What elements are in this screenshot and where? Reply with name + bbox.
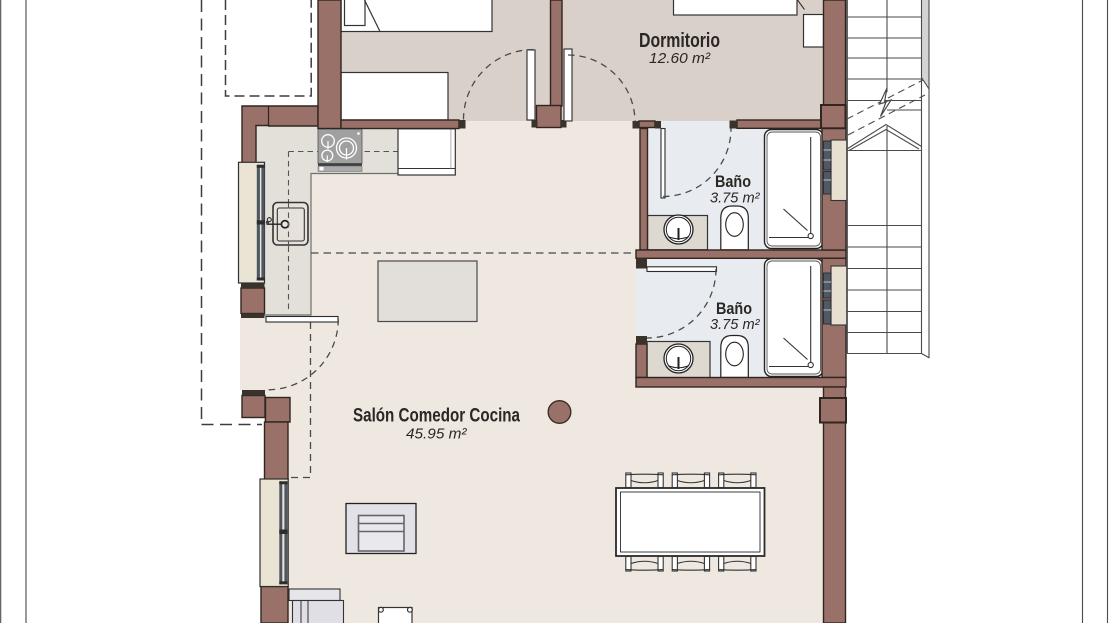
svg-text:Baño: Baño [715,172,751,191]
svg-text:Dormitorio: Dormitorio [639,30,720,52]
svg-text:3.75 m²: 3.75 m² [710,317,761,333]
svg-text:Baño: Baño [716,299,752,318]
svg-text:Salón Comedor Cocina: Salón Comedor Cocina [353,405,520,427]
svg-text:3.75 m²: 3.75 m² [710,191,761,207]
svg-text:45.95 m²: 45.95 m² [406,426,468,443]
svg-text:12.60 m²: 12.60 m² [649,50,711,67]
